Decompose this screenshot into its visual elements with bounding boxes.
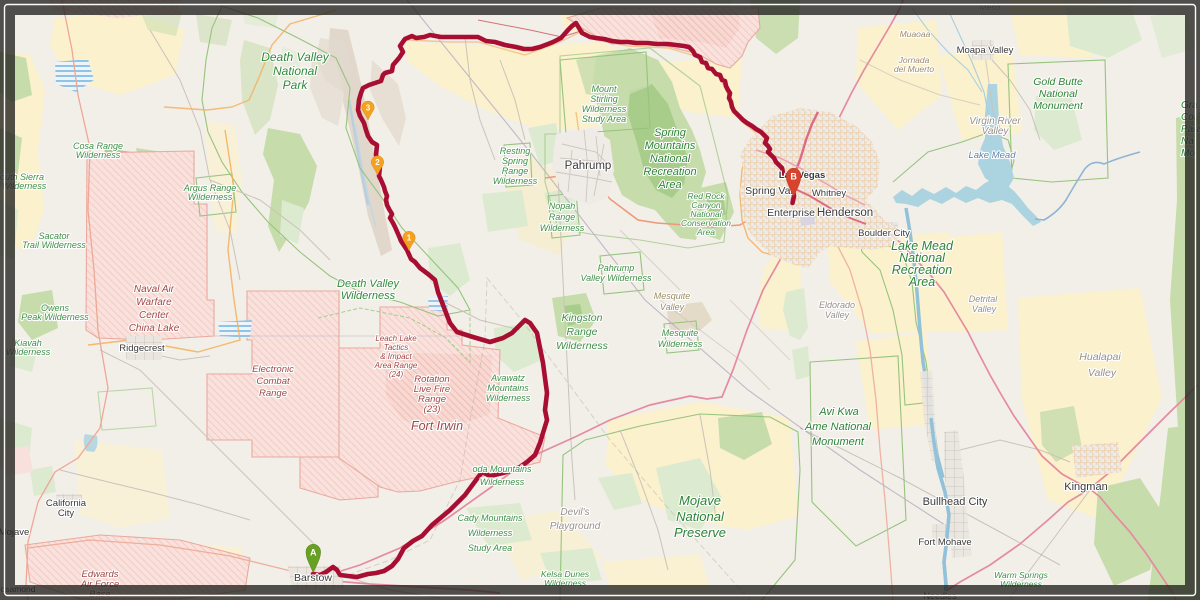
svg-text:Wilderness: Wilderness: [658, 339, 703, 349]
svg-text:Area: Area: [908, 275, 935, 289]
svg-text:Spring: Spring: [502, 156, 528, 166]
svg-text:Electronic: Electronic: [252, 364, 294, 375]
svg-text:Tactics: Tactics: [384, 343, 409, 352]
svg-text:Valley: Valley: [982, 126, 1010, 137]
svg-text:Monument: Monument: [1033, 100, 1084, 112]
svg-text:A: A: [310, 548, 317, 558]
svg-text:Peak Wilderness: Peak Wilderness: [21, 312, 89, 322]
svg-text:(23): (23): [424, 404, 441, 415]
svg-text:National: National: [273, 64, 317, 78]
svg-text:Avawatz: Avawatz: [490, 373, 525, 383]
svg-text:(24): (24): [389, 370, 404, 379]
svg-text:Stirling: Stirling: [590, 94, 618, 104]
svg-text:Avi Kwa: Avi Kwa: [818, 406, 859, 418]
svg-text:Mojave: Mojave: [679, 493, 721, 508]
svg-text:Recreation: Recreation: [643, 166, 696, 178]
svg-text:Pahrump: Pahrump: [565, 160, 612, 172]
svg-text:Valley Wilderness: Valley Wilderness: [580, 273, 652, 283]
svg-text:Ridgecrest: Ridgecrest: [119, 343, 165, 354]
svg-text:Valley: Valley: [825, 310, 850, 320]
svg-text:1: 1: [407, 234, 412, 243]
svg-text:Mesquite: Mesquite: [662, 328, 699, 338]
svg-text:Resting: Resting: [500, 146, 531, 156]
svg-text:Area Range: Area Range: [374, 361, 418, 370]
svg-text:Bullhead City: Bullhead City: [923, 496, 988, 508]
svg-text:Range: Range: [502, 166, 529, 176]
svg-text:& Impact: & Impact: [380, 352, 412, 361]
svg-text:Study Area: Study Area: [582, 114, 626, 124]
svg-text:Wilderness: Wilderness: [540, 223, 585, 233]
svg-text:China Lake: China Lake: [129, 323, 180, 334]
svg-text:Whitney: Whitney: [812, 188, 847, 199]
svg-text:National: National: [650, 153, 691, 165]
svg-text:Trail Wilderness: Trail Wilderness: [22, 240, 86, 250]
svg-text:Leach Lake: Leach Lake: [375, 334, 417, 343]
svg-text:Wilderness: Wilderness: [188, 192, 233, 202]
svg-text:Spring Val: Spring Val: [745, 185, 793, 197]
svg-text:Fort Irwin: Fort Irwin: [411, 419, 463, 433]
svg-text:Devil's: Devil's: [560, 507, 589, 518]
svg-text:Mount: Mount: [591, 84, 617, 94]
svg-text:del Muerto: del Muerto: [894, 64, 934, 74]
svg-text:Valley: Valley: [660, 302, 685, 312]
svg-text:Eldorado: Eldorado: [819, 300, 855, 310]
svg-text:Center: Center: [139, 310, 170, 321]
svg-text:Death Valley: Death Valley: [261, 50, 330, 64]
svg-text:Range: Range: [259, 388, 287, 399]
svg-text:Muaoaa: Muaoaa: [900, 29, 931, 39]
svg-text:Pahrump: Pahrump: [598, 263, 635, 273]
svg-text:Death Valley: Death Valley: [337, 278, 400, 290]
svg-text:Enterprise: Enterprise: [767, 207, 815, 219]
svg-text:B: B: [790, 172, 797, 182]
svg-text:Valley: Valley: [972, 304, 997, 314]
svg-text:Barstow: Barstow: [294, 572, 332, 584]
svg-text:3: 3: [366, 103, 371, 112]
svg-text:Warfare: Warfare: [136, 297, 172, 308]
svg-text:Study Area: Study Area: [468, 543, 512, 553]
svg-text:Ame National: Ame National: [804, 421, 872, 433]
svg-text:Area: Area: [696, 227, 715, 237]
svg-text:Mountains: Mountains: [487, 383, 529, 393]
svg-text:Wilderness: Wilderness: [480, 477, 525, 487]
svg-text:Range: Range: [549, 212, 576, 222]
svg-text:Fort Mohave: Fort Mohave: [918, 537, 971, 548]
svg-text:Wilderness: Wilderness: [493, 176, 538, 186]
svg-text:Mesquite: Mesquite: [654, 291, 691, 301]
svg-text:Combat: Combat: [256, 376, 290, 387]
svg-text:Playground: Playground: [550, 521, 601, 532]
svg-text:oda Mountains: oda Mountains: [472, 464, 532, 474]
svg-text:City: City: [58, 508, 75, 519]
svg-text:Lake Mead: Lake Mead: [968, 150, 1016, 161]
svg-text:Wilderness: Wilderness: [76, 150, 121, 160]
svg-text:Mountains: Mountains: [645, 140, 696, 152]
svg-text:2: 2: [375, 158, 380, 167]
svg-text:Henderson: Henderson: [817, 207, 873, 219]
svg-text:Monument: Monument: [812, 436, 865, 448]
svg-text:Boulder City: Boulder City: [858, 228, 910, 239]
svg-text:Cady Mountains: Cady Mountains: [457, 513, 523, 523]
svg-text:National: National: [676, 509, 725, 524]
svg-text:Spring: Spring: [654, 127, 687, 139]
svg-text:Wilderness: Wilderness: [556, 340, 609, 352]
svg-text:Preserve: Preserve: [674, 525, 726, 540]
svg-text:Wilderness: Wilderness: [341, 290, 396, 302]
svg-text:Area: Area: [657, 179, 681, 191]
svg-text:Las Vegas: Las Vegas: [779, 170, 825, 181]
svg-text:Gold Butte: Gold Butte: [1033, 76, 1083, 88]
svg-text:Wilderness: Wilderness: [468, 528, 513, 538]
svg-text:Naval Air: Naval Air: [134, 284, 175, 295]
svg-text:Range: Range: [567, 326, 598, 338]
svg-text:Kingman: Kingman: [1064, 481, 1107, 493]
svg-text:National: National: [1039, 88, 1078, 100]
svg-text:Moapa Valley: Moapa Valley: [957, 45, 1014, 56]
svg-text:Wilderness: Wilderness: [486, 393, 531, 403]
svg-text:Valley: Valley: [1088, 367, 1117, 379]
svg-text:Nopah: Nopah: [549, 201, 576, 211]
svg-text:Wilderness: Wilderness: [582, 104, 627, 114]
svg-text:Hualapai: Hualapai: [1079, 351, 1121, 363]
svg-text:Detrital: Detrital: [969, 294, 999, 304]
svg-text:Kingston: Kingston: [562, 312, 603, 324]
svg-text:Park: Park: [283, 78, 309, 92]
